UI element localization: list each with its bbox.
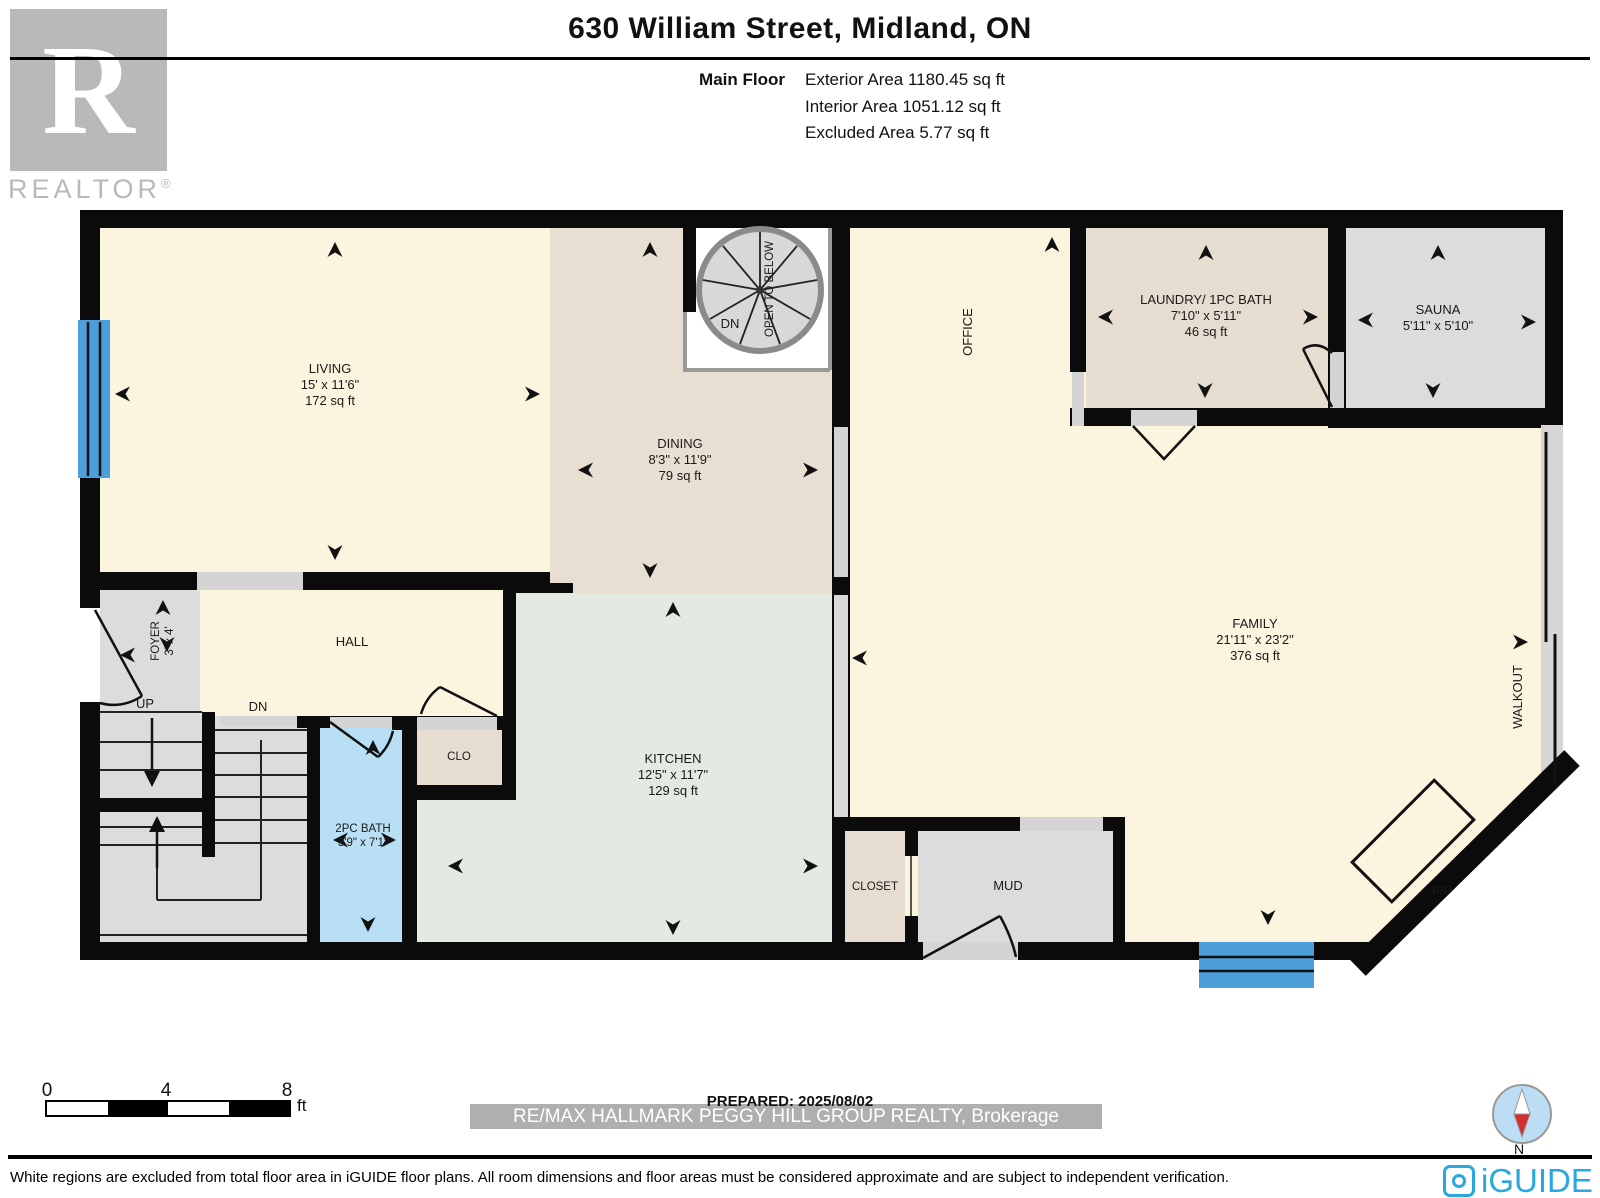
floor-label: Main Floor — [430, 70, 785, 90]
stairs-dn-label: DN — [249, 699, 268, 715]
closet-label: CLOSET — [852, 880, 898, 894]
mud-door-arc — [923, 916, 1016, 958]
walkout-slider-panels — [1546, 432, 1555, 785]
disclaimer-text: White regions are excluded from total fl… — [10, 1169, 1229, 1186]
sauna-door-arc — [1303, 345, 1332, 407]
floorplan-page: 630 William Street, Midland, ON Main Flo… — [0, 0, 1600, 1198]
realtor-logo-icon: R — [10, 9, 167, 171]
living-label: LIVING15' x 11'6"172 sq ft — [301, 361, 360, 409]
open-below-label: OPEN TO BELOW — [763, 241, 777, 337]
hall-label: HALL — [336, 634, 369, 650]
kitchen-label: KITCHEN12'5" x 11'7"129 sq ft — [638, 751, 708, 799]
realtor-logo-text: REALTOR® — [8, 174, 175, 205]
footer-divider — [8, 1155, 1592, 1159]
walkout-label: WALKOUT — [1510, 665, 1526, 729]
laundry-door — [1133, 426, 1195, 459]
prepared-date: PREPARED: 2025/08/02 — [640, 1093, 940, 1110]
plan-linework — [80, 210, 1563, 995]
family-label: FAMILY21'11" x 23'2"376 sq ft — [1216, 616, 1294, 664]
laundry-label: LAUNDRY/ 1PC BATH7'10" x 5'11"46 sq ft — [1140, 292, 1272, 340]
spiral-staircase — [699, 229, 821, 351]
exterior-area: Exterior Area 1180.45 sq ft — [805, 70, 1005, 90]
bath-door-arc — [330, 722, 393, 757]
iguide-icon — [1443, 1165, 1475, 1197]
foyer-label: FOYER3' x 4' — [149, 621, 177, 661]
clo-door-arc — [421, 687, 497, 716]
iguide-logo-text: iGUIDE — [1481, 1164, 1593, 1197]
sauna-label: SAUNA5'11" x 5'10" — [1403, 302, 1473, 334]
fireplace-label: F/P — [1432, 883, 1452, 899]
stair-treads — [100, 712, 307, 935]
scale-tick-0: 0 — [42, 1080, 53, 1102]
page-title: 630 William Street, Midland, ON — [0, 12, 1600, 46]
bath-label: 2PC BATH3'9" x 7'1" — [335, 822, 390, 850]
stairs-up-label: UP — [136, 696, 154, 712]
spiral-dn-label: DN — [721, 316, 740, 332]
scale-unit: ft — [297, 1096, 306, 1116]
excluded-area: Excluded Area 5.77 sq ft — [805, 123, 989, 143]
entry-door-arc — [95, 610, 142, 705]
clo-label: CLO — [447, 750, 471, 764]
registered-mark: ® — [161, 176, 175, 191]
office-label: OFFICE — [960, 308, 976, 356]
dimension-arrows — [115, 237, 1536, 935]
mud-label: MUD — [993, 878, 1023, 894]
header-divider — [10, 57, 1590, 60]
well-wall-stub — [683, 228, 696, 312]
scale-tick-8: 8 — [282, 1080, 293, 1102]
iguide-logo: iGUIDE — [1443, 1164, 1593, 1197]
scale-tick-4: 4 — [161, 1080, 172, 1102]
dining-label: DINING8'3" x 11'9"79 sq ft — [648, 436, 711, 484]
window-mullions — [88, 322, 1314, 971]
interior-area: Interior Area 1051.12 sq ft — [805, 97, 1001, 117]
compass-icon — [1492, 1084, 1552, 1144]
floor-plan: LIVING15' x 11'6"172 sq ft DINING8'3" x … — [80, 210, 1563, 960]
scale-bar — [45, 1100, 291, 1117]
